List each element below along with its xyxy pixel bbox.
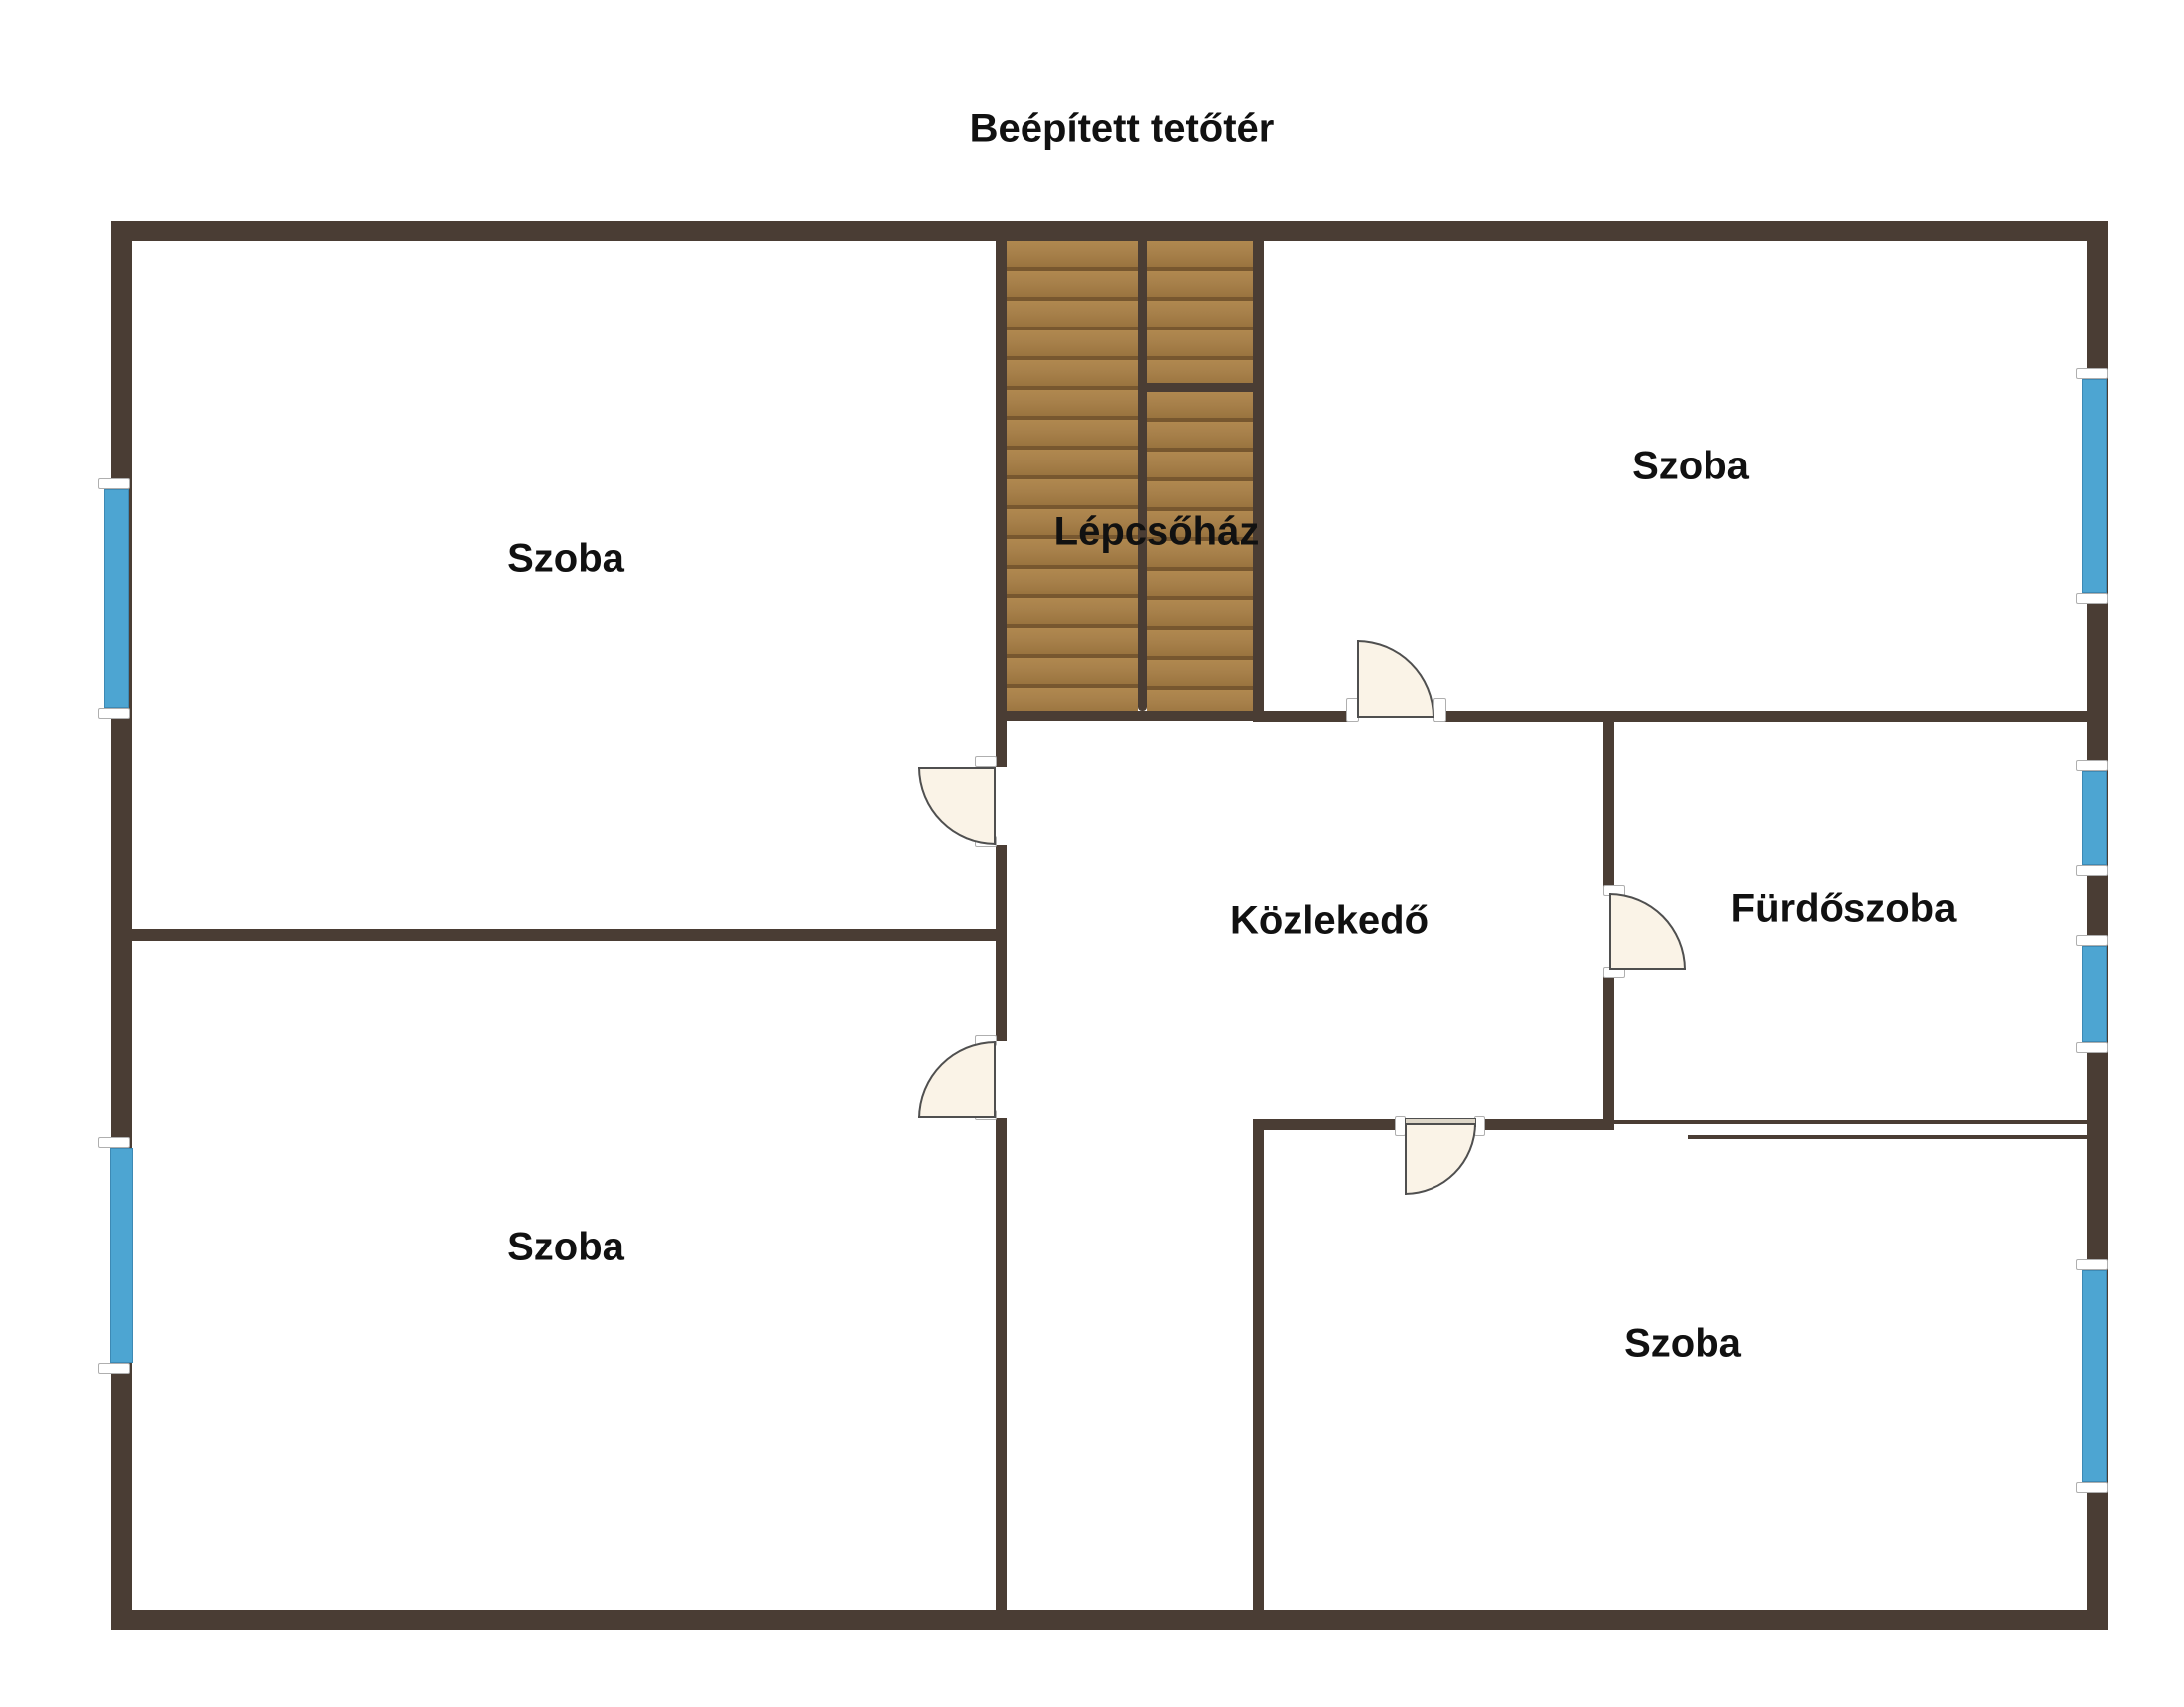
room-label-hallway: Közlekedő [1230, 899, 1429, 944]
stair-flight-left [1007, 241, 1138, 711]
left-rooms-partition-wall [132, 929, 996, 941]
window [110, 1148, 133, 1363]
topright-room-wall-b [1434, 711, 2087, 722]
room-label-bottom-right: Szoba [1624, 1322, 1741, 1367]
corridor-wall-left-middle [996, 845, 1007, 1041]
room-label-bottom-left: Szoba [507, 1226, 624, 1270]
stair-wall-right [1253, 241, 1264, 722]
door-arc [918, 1041, 996, 1118]
window [2082, 379, 2107, 593]
window-cap [98, 1363, 130, 1374]
window [2082, 771, 2107, 865]
outer-wall-left [111, 221, 132, 1630]
window-cap [2076, 935, 2108, 946]
bathroom-bottom-thin-line-2 [1688, 1135, 2087, 1139]
door-arc [1357, 640, 1434, 718]
room-label-staircase: Lépcsőház [1054, 510, 1260, 555]
room-label-top-left: Szoba [507, 537, 624, 582]
door-arc [1609, 893, 1686, 970]
door-jamb [1433, 698, 1446, 722]
window-cap [2076, 1042, 2108, 1053]
floor-plan: Beépített tetőtér [0, 0, 2184, 1707]
outer-wall-bottom [111, 1610, 2108, 1630]
door-arc [1405, 1123, 1476, 1195]
corridor-wall-left-upper [996, 241, 1007, 767]
corridor-wall-left-lower [996, 1118, 1007, 1610]
window [2082, 1270, 2107, 1482]
bathroom-wall-upper [1603, 711, 1614, 893]
window-cap [98, 708, 130, 719]
window-cap [2076, 1259, 2108, 1270]
stair-landing-wall [1147, 383, 1253, 392]
bottomright-room-left-wall [1253, 1130, 1264, 1610]
bathroom-wall-lower [1603, 970, 1614, 1130]
plan-title: Beépített tetőtér [970, 107, 1275, 152]
room-label-bathroom: Fürdőszoba [1731, 887, 1957, 932]
room-label-top-right: Szoba [1632, 445, 1749, 489]
window-cap [2076, 760, 2108, 771]
window [2082, 946, 2107, 1042]
stair-bottom-edge [996, 711, 1264, 721]
window-cap [2076, 1482, 2108, 1493]
stair-flight-right-upper [1147, 241, 1253, 383]
bottomright-room-top-wall-b [1476, 1119, 1603, 1130]
door-arc [918, 767, 996, 845]
door-jamb [975, 756, 997, 767]
window-cap [2076, 593, 2108, 604]
topright-room-wall-a [1264, 711, 1357, 722]
window-cap [98, 1137, 130, 1148]
window-cap [2076, 368, 2108, 379]
window-cap [98, 478, 130, 489]
bathroom-bottom-thin-line [1614, 1120, 2087, 1124]
stair-center-divider [1138, 241, 1147, 711]
bottomright-room-top-wall-a [1253, 1119, 1405, 1130]
window [104, 489, 129, 708]
outer-wall-top [111, 221, 2108, 241]
window-cap [2076, 865, 2108, 876]
